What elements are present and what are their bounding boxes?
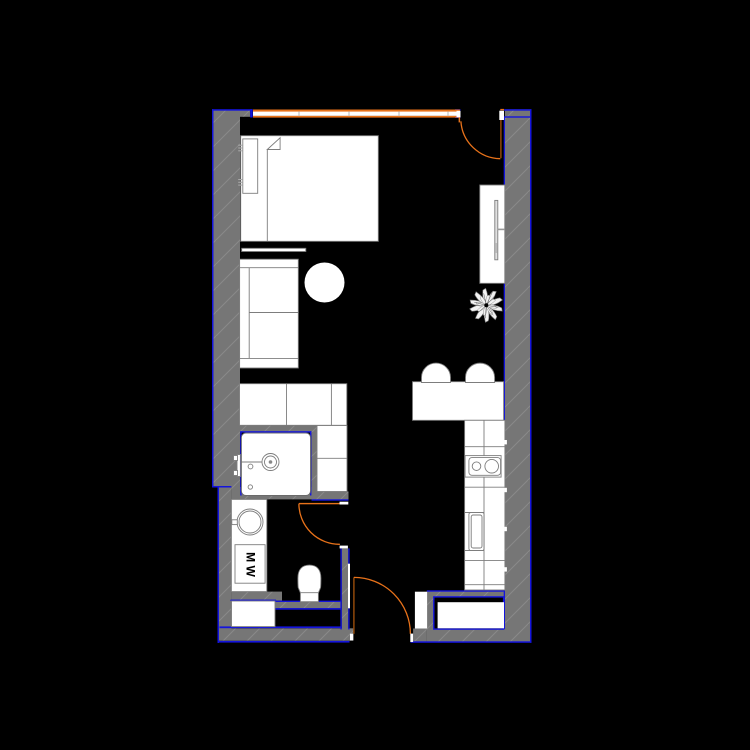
svg-text:M W: M W (244, 552, 258, 577)
